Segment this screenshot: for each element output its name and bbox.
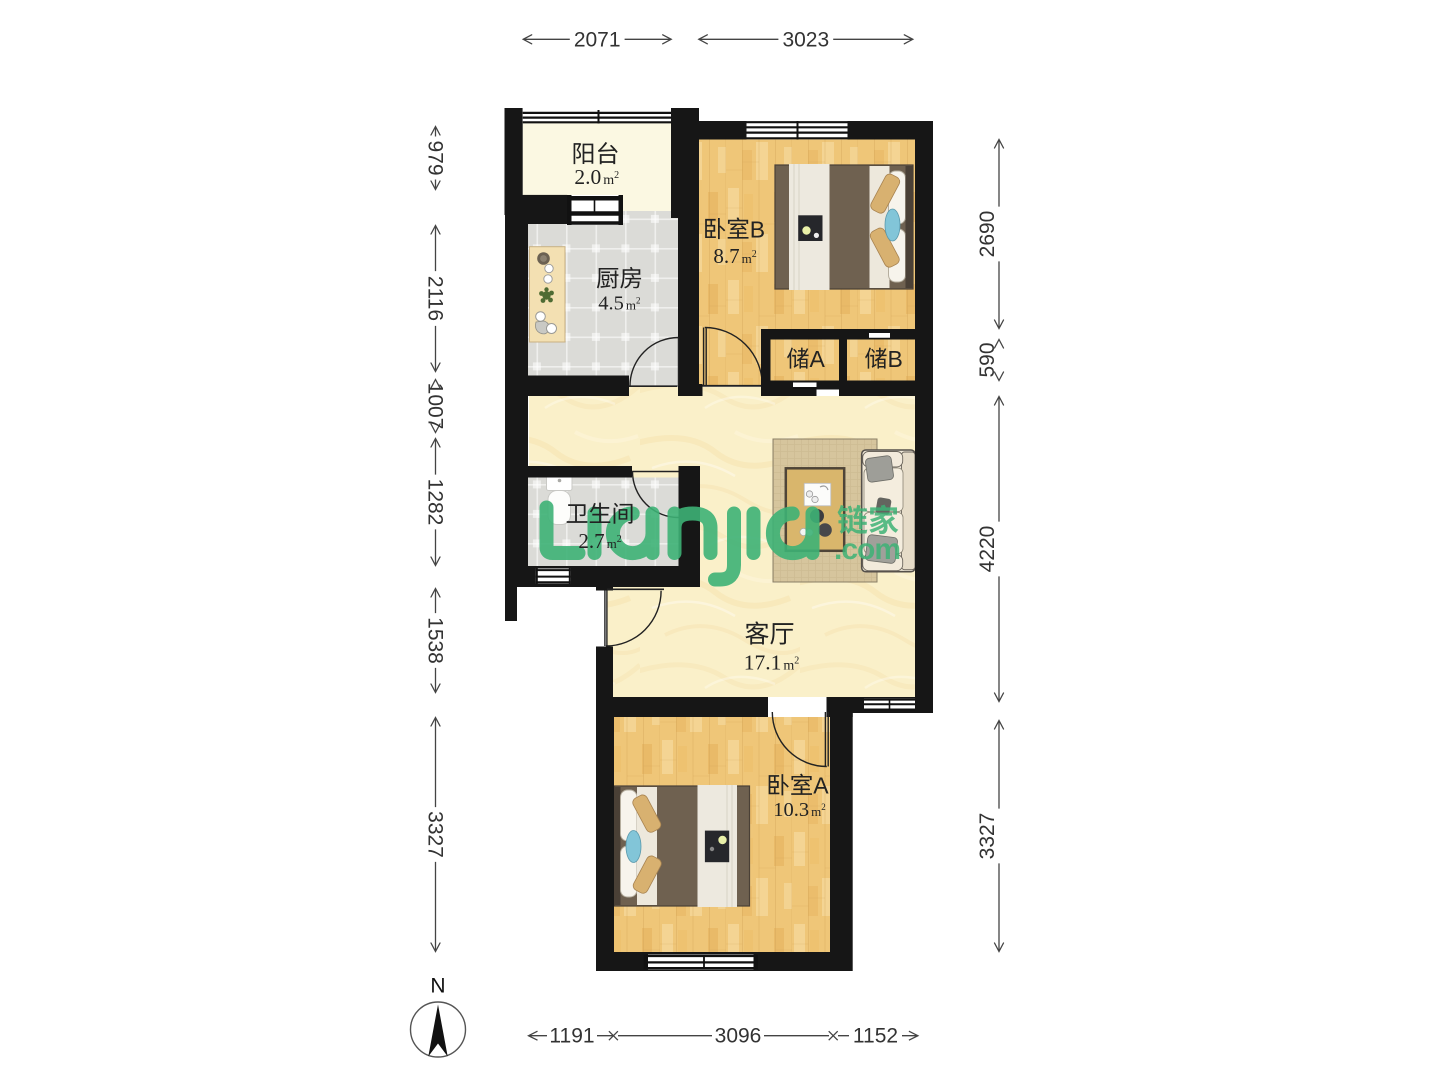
svg-text:A: A (813, 773, 829, 799)
svg-text:2690: 2690 (976, 211, 999, 258)
svg-text:1282: 1282 (424, 479, 447, 526)
svg-text:3327: 3327 (424, 811, 447, 858)
svg-text:1152: 1152 (853, 1025, 898, 1048)
svg-text:3327: 3327 (976, 813, 999, 860)
svg-text:.com: .com (834, 533, 900, 566)
svg-text:4220: 4220 (976, 526, 999, 573)
svg-text:A: A (810, 346, 826, 372)
svg-text:979: 979 (424, 140, 447, 175)
svg-text:N: N (430, 975, 445, 998)
svg-text:3096: 3096 (715, 1025, 762, 1048)
svg-text:1007: 1007 (424, 383, 447, 430)
svg-text:2116: 2116 (424, 276, 447, 321)
svg-text:590: 590 (976, 342, 999, 377)
svg-text:3023: 3023 (782, 28, 829, 51)
svg-text:2071: 2071 (574, 28, 621, 51)
svg-text:B: B (750, 216, 765, 242)
svg-text:1538: 1538 (424, 617, 447, 664)
svg-text:B: B (888, 346, 903, 372)
svg-text:1191: 1191 (549, 1025, 594, 1048)
